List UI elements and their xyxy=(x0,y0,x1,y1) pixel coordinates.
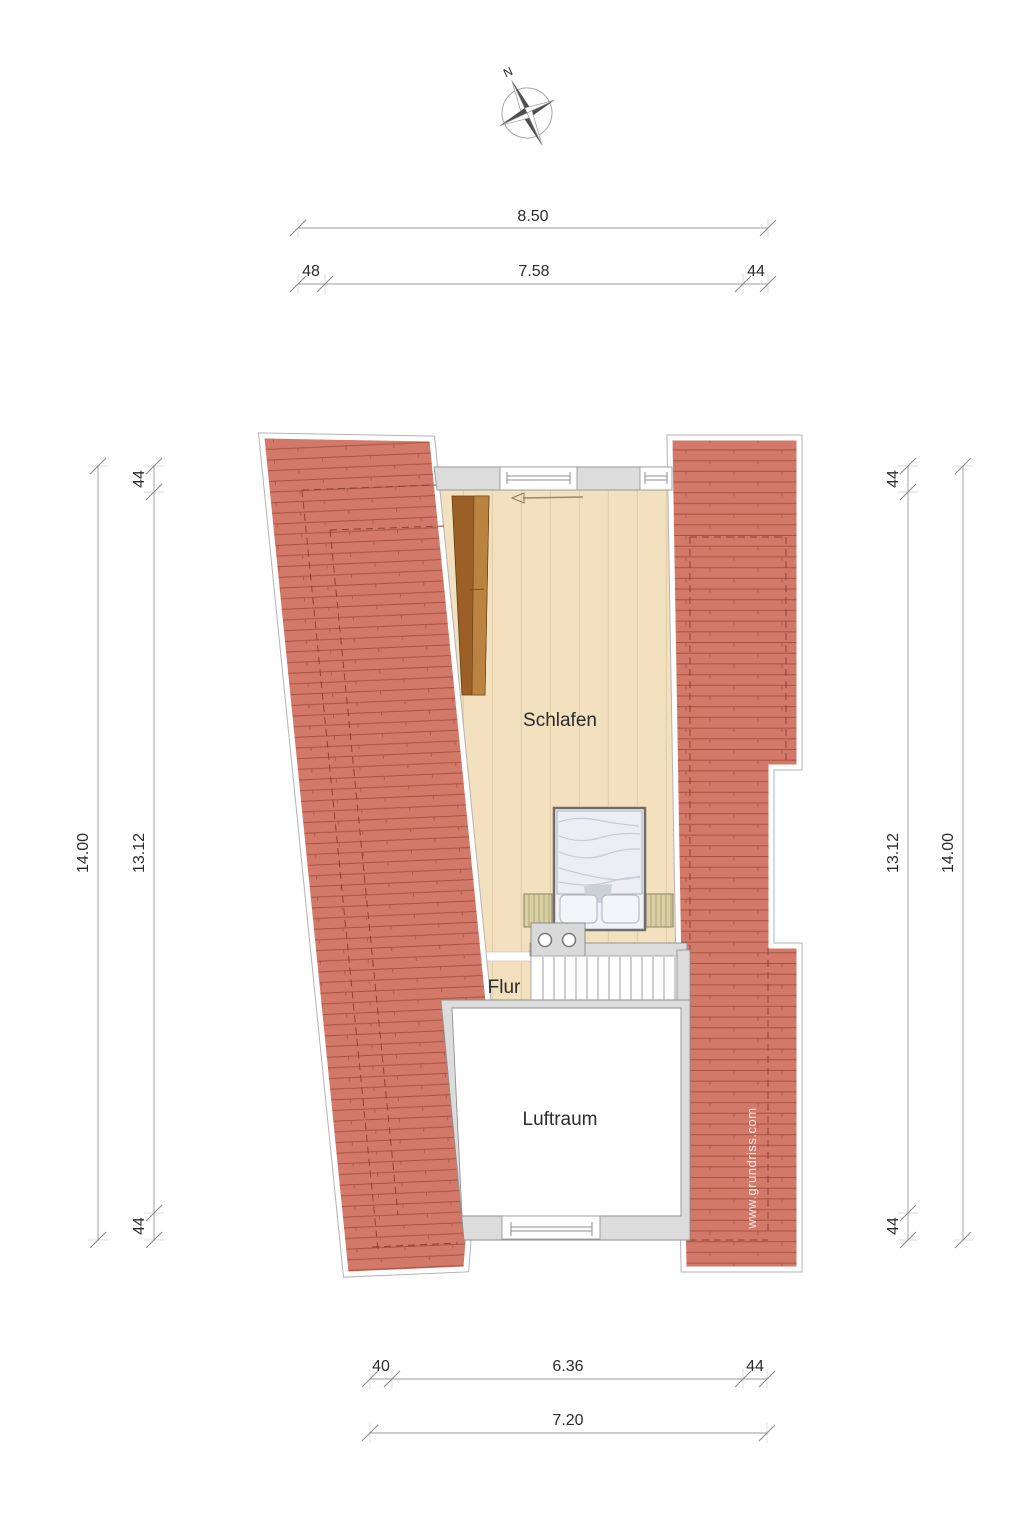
bed-pillow-right xyxy=(602,895,639,923)
dim-left-seg-3: 44 xyxy=(131,1217,148,1235)
chimney-flue-2 xyxy=(563,934,576,947)
dim-bottom-seg-1: 40 xyxy=(372,1358,390,1375)
nightstand-right xyxy=(646,894,673,927)
dim-bottom-overall-label: 7.20 xyxy=(552,1412,583,1429)
chimney xyxy=(531,923,585,958)
top-window-2 xyxy=(640,467,672,490)
dim-left-overall-label: 14.00 xyxy=(75,833,92,873)
watermark-text: www.grundriss.com xyxy=(744,1107,759,1229)
compass-needle xyxy=(485,68,570,159)
dim-top-seg-1: 48 xyxy=(302,263,320,280)
top-window-1 xyxy=(500,467,577,490)
flur-threshold xyxy=(481,952,531,961)
compass-rose: N xyxy=(478,53,570,158)
stairwell-right-wall xyxy=(677,950,690,1003)
dimension-left-overall: 14.00 xyxy=(75,458,108,1248)
room-label-schlafen: Schlafen xyxy=(523,710,597,731)
dimension-top-overall: 8.50 xyxy=(290,208,776,238)
room-label-flur: Flur xyxy=(488,977,521,998)
bed xyxy=(554,808,645,930)
staircase xyxy=(531,950,690,1003)
dimension-right-overall: 14.00 xyxy=(940,458,973,1248)
floor-plan-page: Schlafen Flur Luftraum www.grundriss.com… xyxy=(0,0,1024,1536)
bed-pillow-left xyxy=(560,895,597,923)
floor-plan-drawing: Schlafen Flur Luftraum www.grundriss.com… xyxy=(0,0,1024,1536)
dimension-bottom-overall: 7.20 xyxy=(362,1412,775,1443)
dim-right-seg-2: 13.12 xyxy=(885,833,902,873)
dim-top-overall-label: 8.50 xyxy=(517,208,548,225)
dimension-left-segments: 44 13.12 44 xyxy=(131,458,164,1248)
dim-top-seg-3: 44 xyxy=(747,263,765,280)
bed-duvet xyxy=(557,811,642,894)
dimension-top-segments: 48 7.58 44 xyxy=(290,263,776,294)
dim-right-seg-3: 44 xyxy=(885,1217,902,1235)
right-roof xyxy=(672,440,797,1267)
chimney-flue-1 xyxy=(539,934,552,947)
nightstand-left xyxy=(524,894,552,927)
dim-left-seg-1: 44 xyxy=(131,470,148,488)
dim-right-overall-label: 14.00 xyxy=(940,833,957,873)
bottom-window xyxy=(502,1216,600,1239)
dimension-bottom-segments: 40 6.36 44 xyxy=(362,1358,775,1389)
dim-top-seg-2: 7.58 xyxy=(518,263,549,280)
top-wall xyxy=(434,467,672,490)
dim-left-seg-2: 13.12 xyxy=(131,833,148,873)
dim-bottom-seg-3: 44 xyxy=(746,1358,764,1375)
north-label: N xyxy=(501,64,515,80)
dimension-right-segments: 44 13.12 44 xyxy=(885,458,918,1248)
room-label-luftraum: Luftraum xyxy=(523,1109,598,1130)
dim-right-seg-1: 44 xyxy=(885,470,902,488)
dim-bottom-seg-2: 6.36 xyxy=(552,1358,583,1375)
